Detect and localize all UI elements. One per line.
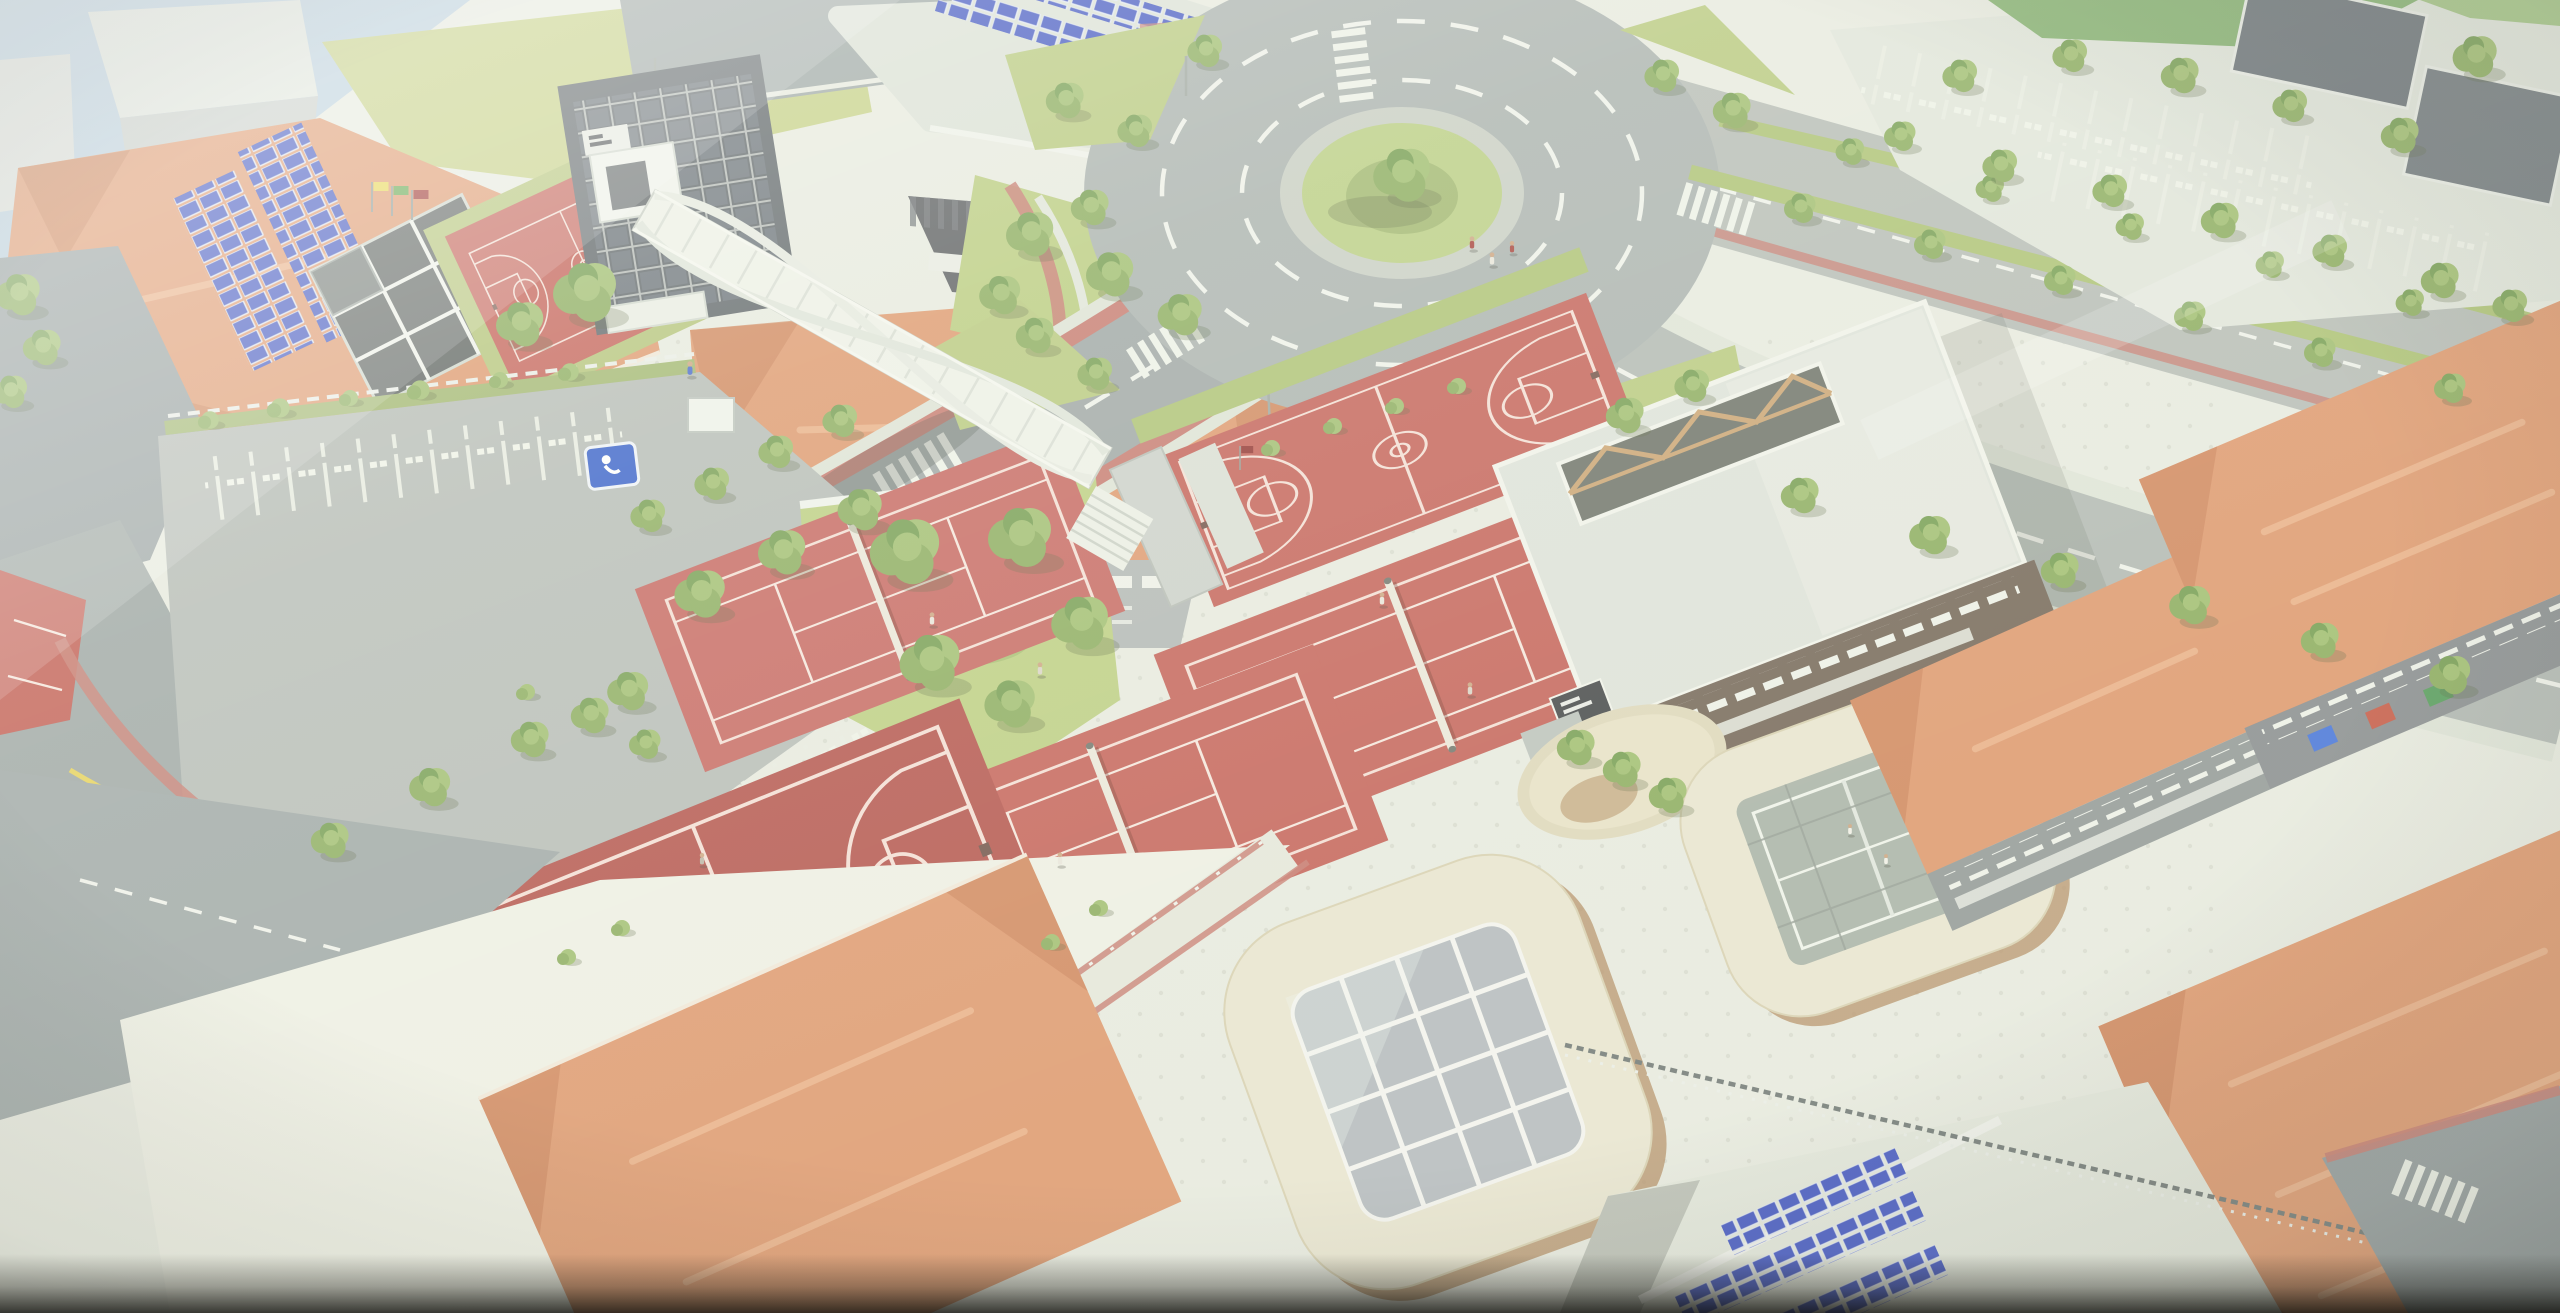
projected-rendering-photo xyxy=(0,0,2560,1313)
masterplan-rendering xyxy=(0,0,2560,1313)
photo-effects xyxy=(0,0,2560,1313)
